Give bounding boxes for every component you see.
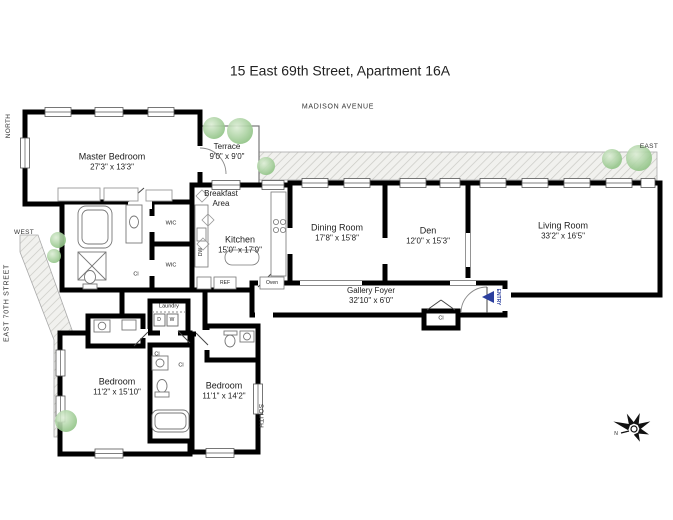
room-name: Area [204,199,238,209]
room-name: Bedroom [93,376,141,387]
compass-rose-icon [612,412,651,443]
room-label-breakfast-area: Breakfast Area [204,189,238,209]
room-label-bedroom-3: Bedroom 11'1" x 14'2" [202,380,245,401]
room-label-den: Den 12'0" x 15'3" [406,225,450,246]
wic-label: WIC [166,221,177,228]
compass-label-west: WEST [14,229,34,237]
room-name: Terrace [210,142,245,152]
compass-label-south: SOUTH [256,404,264,428]
room-dims: 9'0" x 9'0" [210,152,245,162]
room-name: Gallery Foyer [347,286,395,296]
room-label-dining-room: Dining Room 17'8" x 15'8" [311,222,363,243]
page-title: 15 East 69th Street, Apartment 16A [230,62,450,80]
compass-label-north: NORTH [5,114,13,139]
room-dims: 11'2" x 15'10" [93,388,141,398]
room-label-gallery-foyer: Gallery Foyer 32'10" x 6'0" [347,286,395,306]
entry-label: ENTRY [495,289,501,306]
closet-label: Cl [438,316,443,323]
room-dims: 27'3" x 13'3" [79,163,146,173]
compass-label-east: EAST [640,143,658,151]
room-dims: 15'0" x 17'9" [218,246,262,256]
room-label-master-bedroom: Master Bedroom 27'3" x 13'3" [79,151,146,172]
room-dims: 33'2" x 16'5" [538,232,588,242]
closet-label: Cl [133,272,138,279]
room-name: Breakfast [204,189,238,199]
room-label-terrace: Terrace 9'0" x 9'0" [210,142,245,162]
dishwasher-label: DW [198,248,204,256]
room-name: Den [406,225,450,236]
street-label-east-70th-street: EAST 70TH STREET [4,264,13,342]
closet-label: Cl [154,352,159,359]
oven-label: Oven [266,280,278,286]
compass-n-label: N [614,431,618,437]
floor-plan: 15 East 69th Street, Apartment 16A MADIS… [0,0,673,520]
room-name: Dining Room [311,222,363,233]
room-label-kitchen: Kitchen 15'0" x 17'9" [218,234,262,255]
room-label-bedroom-2: Bedroom 11'2" x 15'10" [93,376,141,397]
wic-label: WIC [166,263,177,270]
hatch-band-madison [259,152,657,180]
room-dims: 11'1" x 14'2" [202,392,245,402]
washer-label: W [170,317,175,323]
room-name: Living Room [538,220,588,231]
room-dims: 12'0" x 15'3" [406,237,450,247]
closet-label: Cl [178,363,183,370]
room-label-living-room: Living Room 33'2" x 16'5" [538,220,588,241]
room-name: Kitchen [218,234,262,245]
room-dims: 32'10" x 6'0" [347,296,395,306]
room-dims: 17'8" x 15'8" [311,234,363,244]
bedroom-furniture [58,188,172,201]
room-label-laundry: Laundry [159,304,179,311]
refrigerator-label: REF [220,280,230,286]
room-name: Bedroom [202,380,245,391]
dryer-label: D [157,317,161,323]
room-name: Master Bedroom [79,151,146,162]
street-label-madison-avenue: MADISON AVENUE [302,104,374,113]
